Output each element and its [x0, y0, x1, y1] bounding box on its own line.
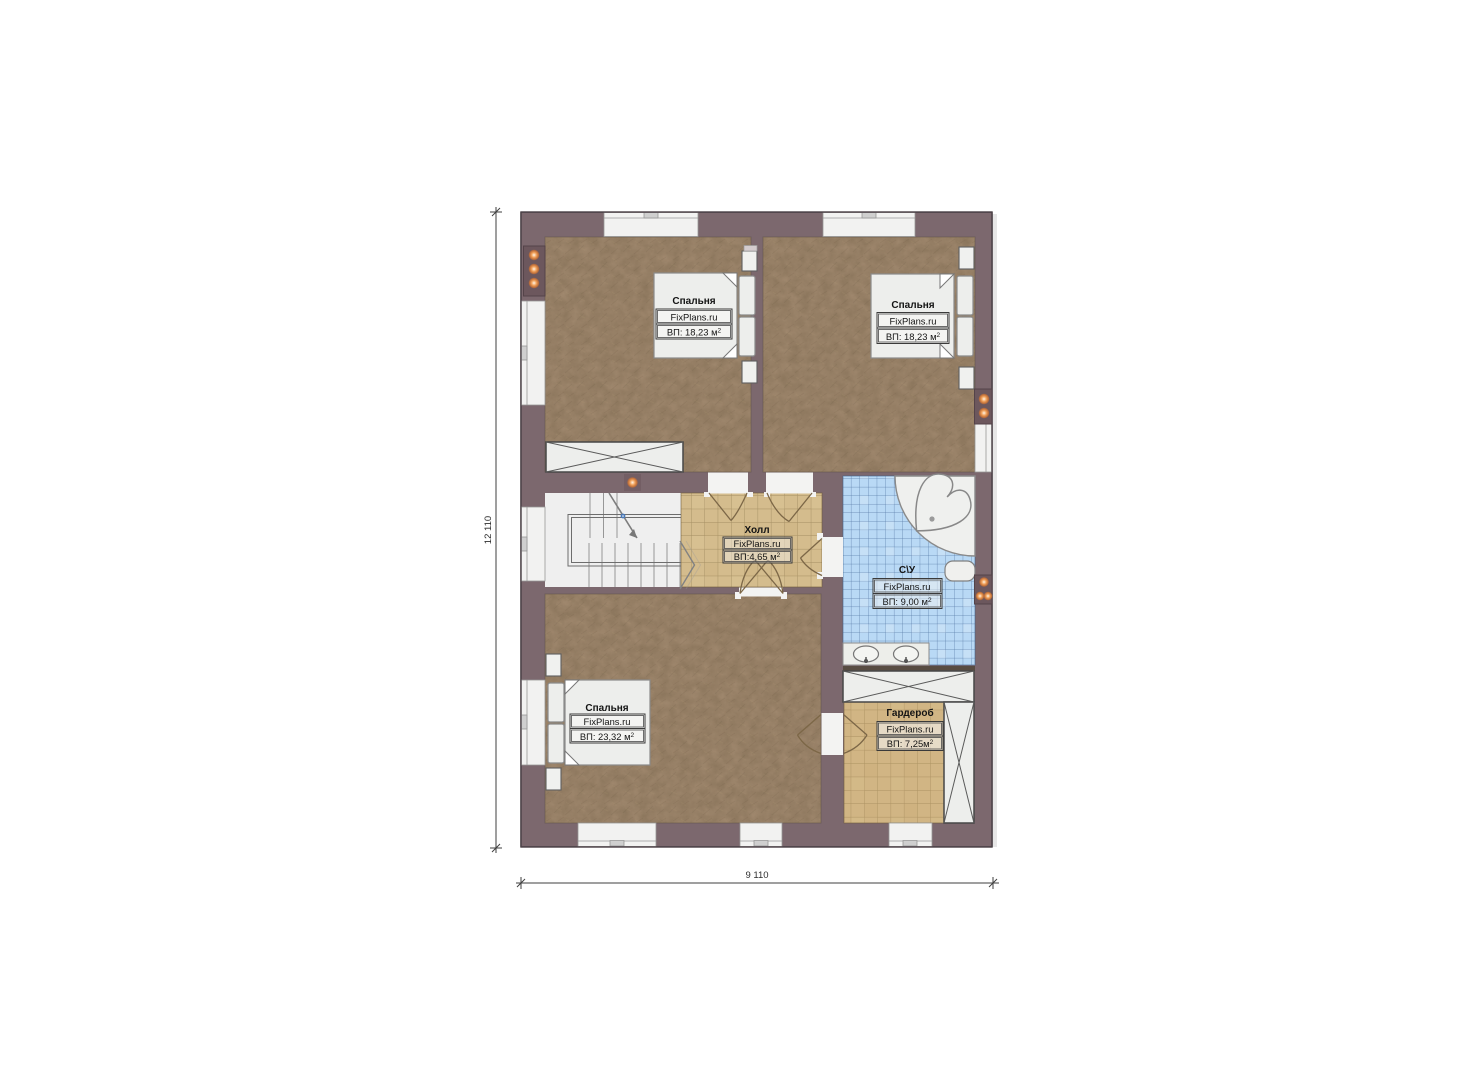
svg-text:ВП:4,65 м2: ВП:4,65 м2 [734, 551, 781, 562]
svg-text:Холл: Холл [744, 525, 769, 536]
svg-text:FixPlans.ru: FixPlans.ru [734, 538, 781, 549]
svg-text:FixPlans.ru: FixPlans.ru [584, 716, 631, 727]
svg-text:С\У: С\У [899, 565, 916, 576]
svg-text:ВП: 9,00 м2: ВП: 9,00 м2 [882, 596, 932, 607]
svg-text:FixPlans.ru: FixPlans.ru [671, 312, 718, 323]
svg-text:ВП: 18,23 м2: ВП: 18,23 м2 [667, 327, 722, 338]
svg-text:FixPlans.ru: FixPlans.ru [887, 724, 934, 735]
svg-text:Спальня: Спальня [585, 703, 628, 714]
svg-text:FixPlans.ru: FixPlans.ru [884, 581, 931, 592]
svg-text:Гардероб: Гардероб [886, 707, 933, 719]
svg-text:Спальня: Спальня [672, 296, 715, 307]
svg-text:ВП: 7,25м2: ВП: 7,25м2 [887, 738, 934, 749]
svg-text:12 110: 12 110 [483, 516, 494, 544]
svg-text:FixPlans.ru: FixPlans.ru [890, 316, 937, 327]
svg-text:9 110: 9 110 [745, 870, 768, 881]
svg-text:ВП: 23,32 м2: ВП: 23,32 м2 [580, 731, 635, 742]
svg-text:Спальня: Спальня [891, 300, 934, 311]
svg-text:ВП: 18,23 м2: ВП: 18,23 м2 [886, 331, 941, 342]
